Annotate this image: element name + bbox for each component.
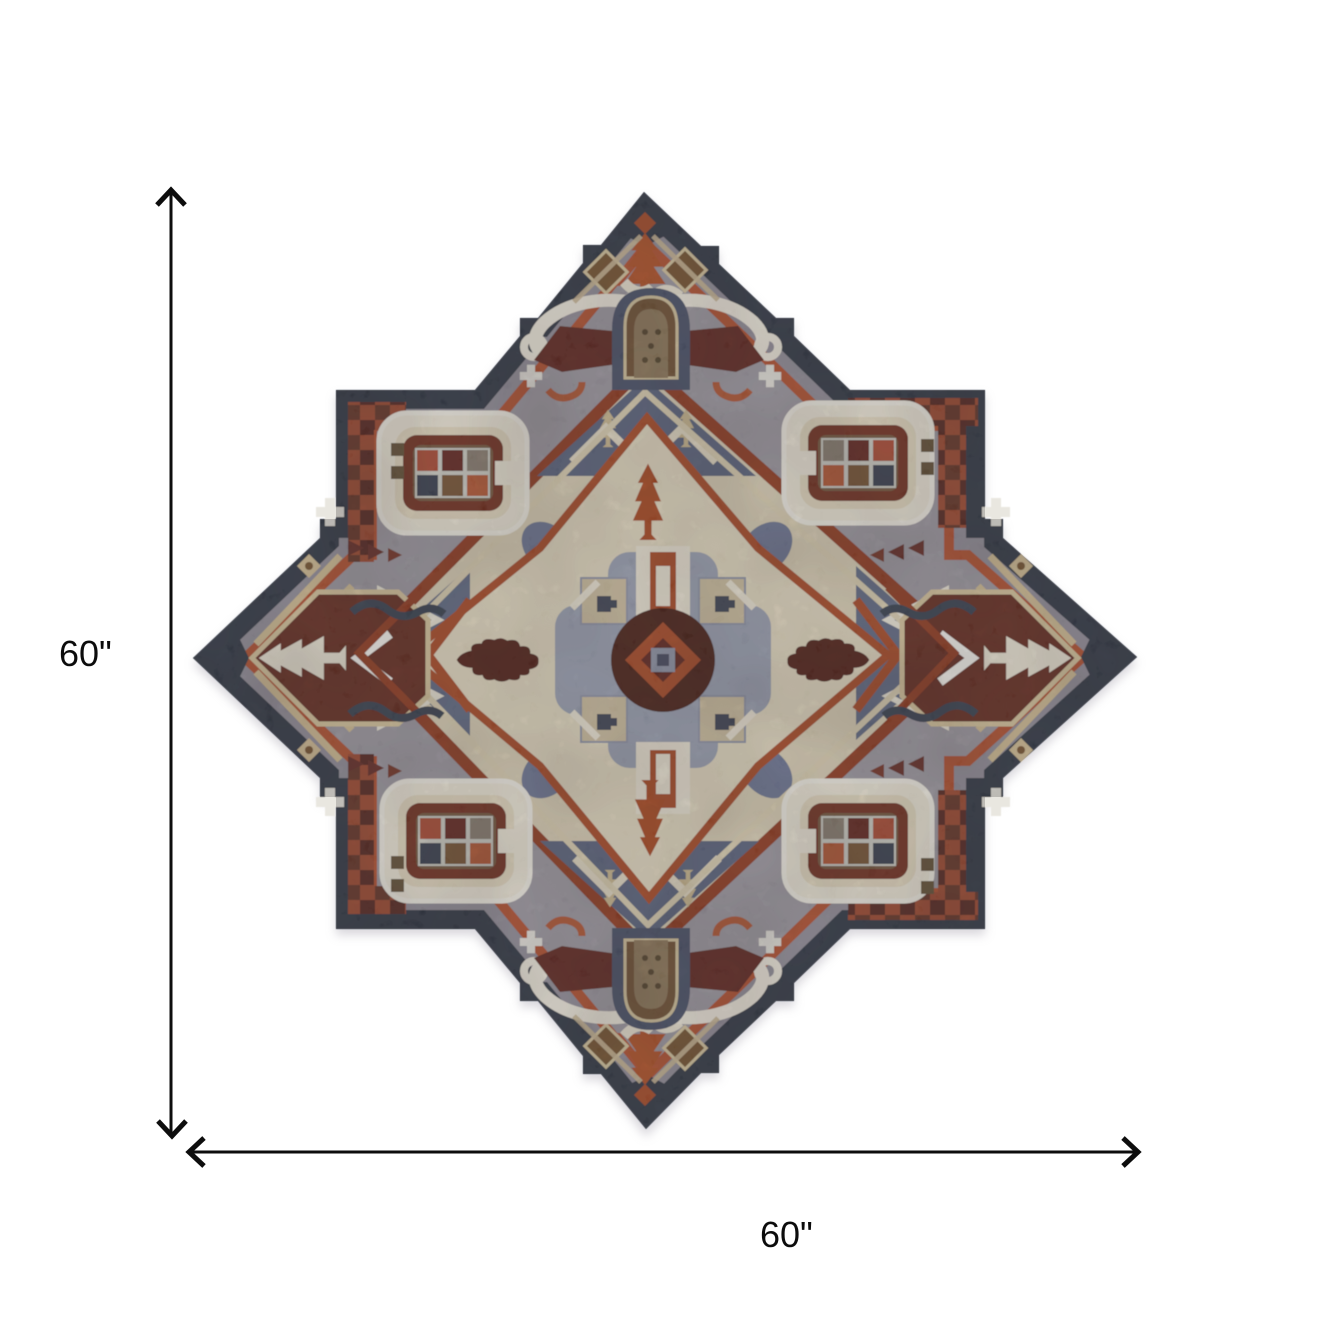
svg-text:60": 60" — [59, 633, 112, 674]
svg-text:60": 60" — [760, 1214, 813, 1255]
